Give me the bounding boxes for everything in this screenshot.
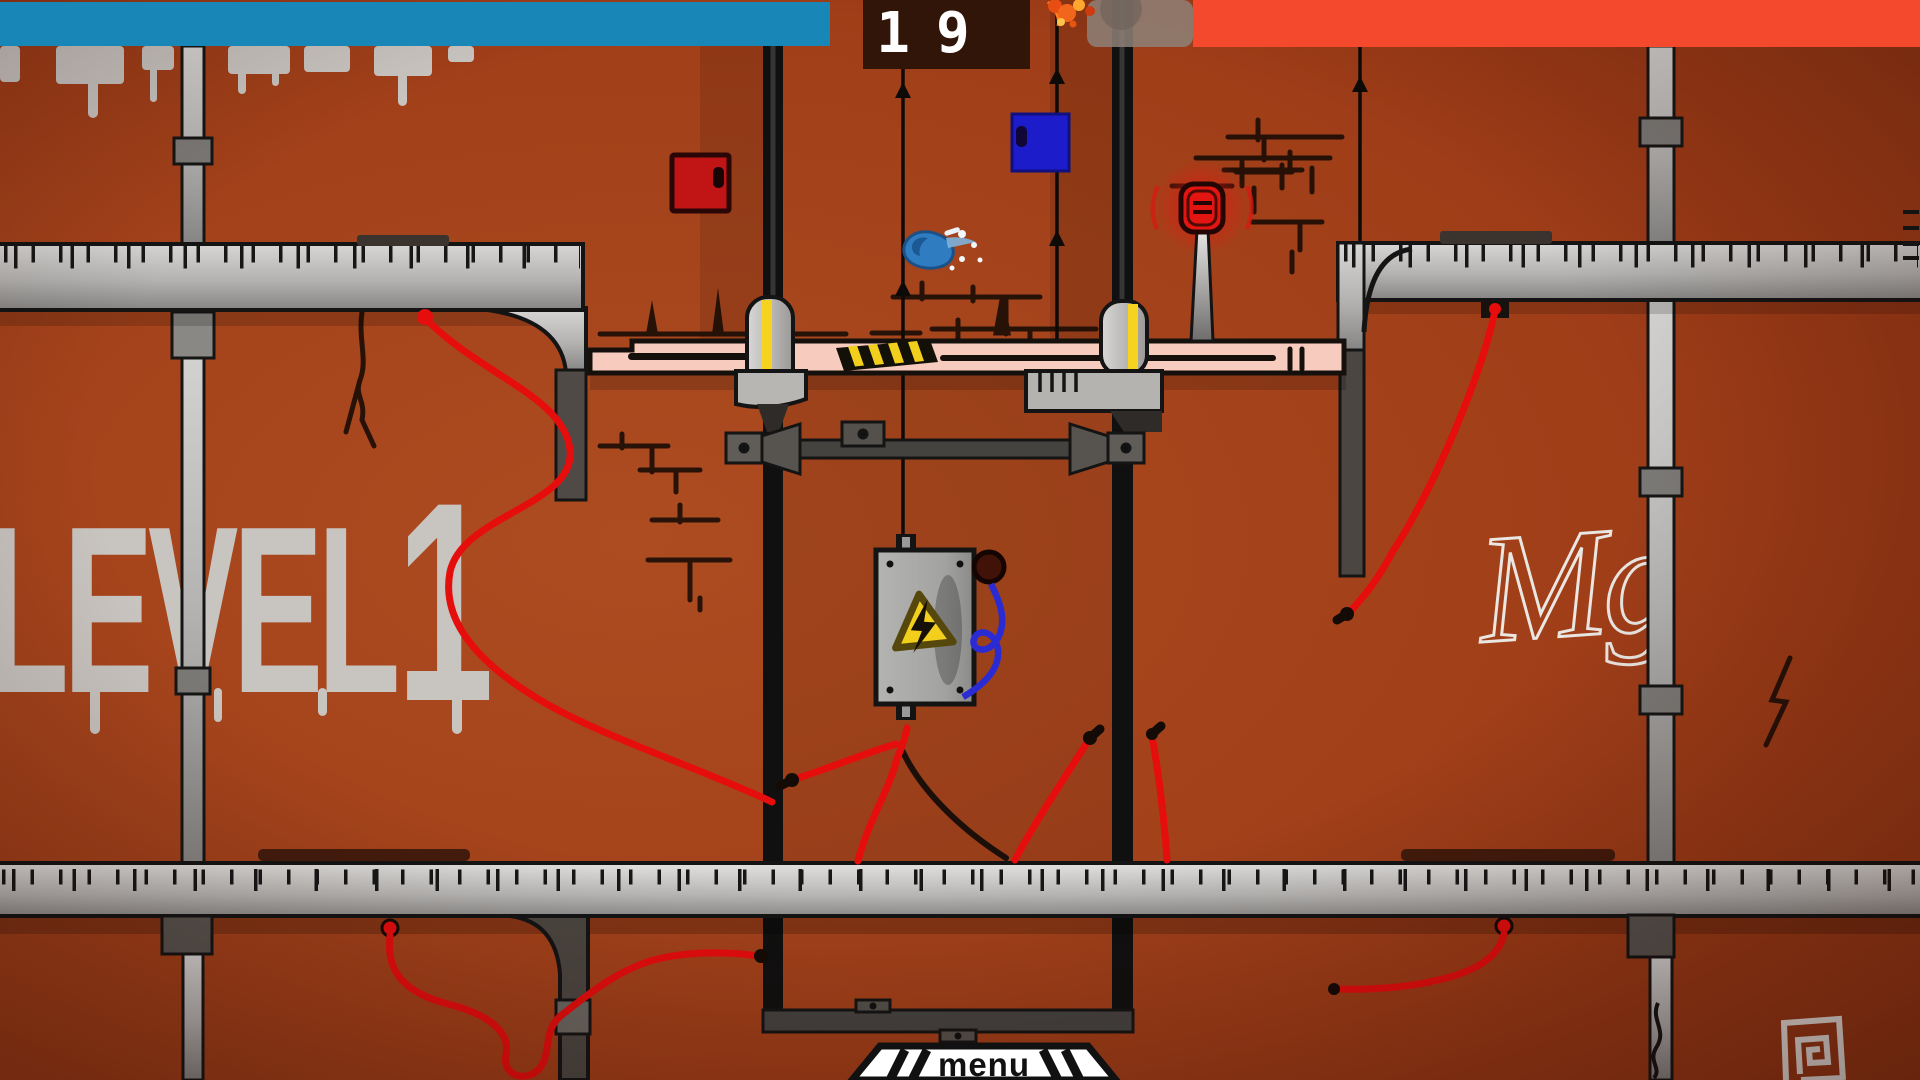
smoke-puff	[1087, 0, 1193, 47]
vignette	[0, 0, 1920, 1080]
menu-button[interactable]: menu	[852, 1046, 1116, 1080]
blue-team-health-bar	[0, 2, 830, 46]
game-viewport: LEVEL 1 Mg	[0, 0, 1920, 1080]
game-scene: LEVEL 1 Mg	[0, 0, 1920, 1080]
timer-value: 19	[876, 1, 995, 66]
menu-button-label: menu	[938, 1046, 1030, 1080]
round-timer: 19	[863, 0, 1030, 69]
red-team-health-bar	[1193, 0, 1920, 47]
